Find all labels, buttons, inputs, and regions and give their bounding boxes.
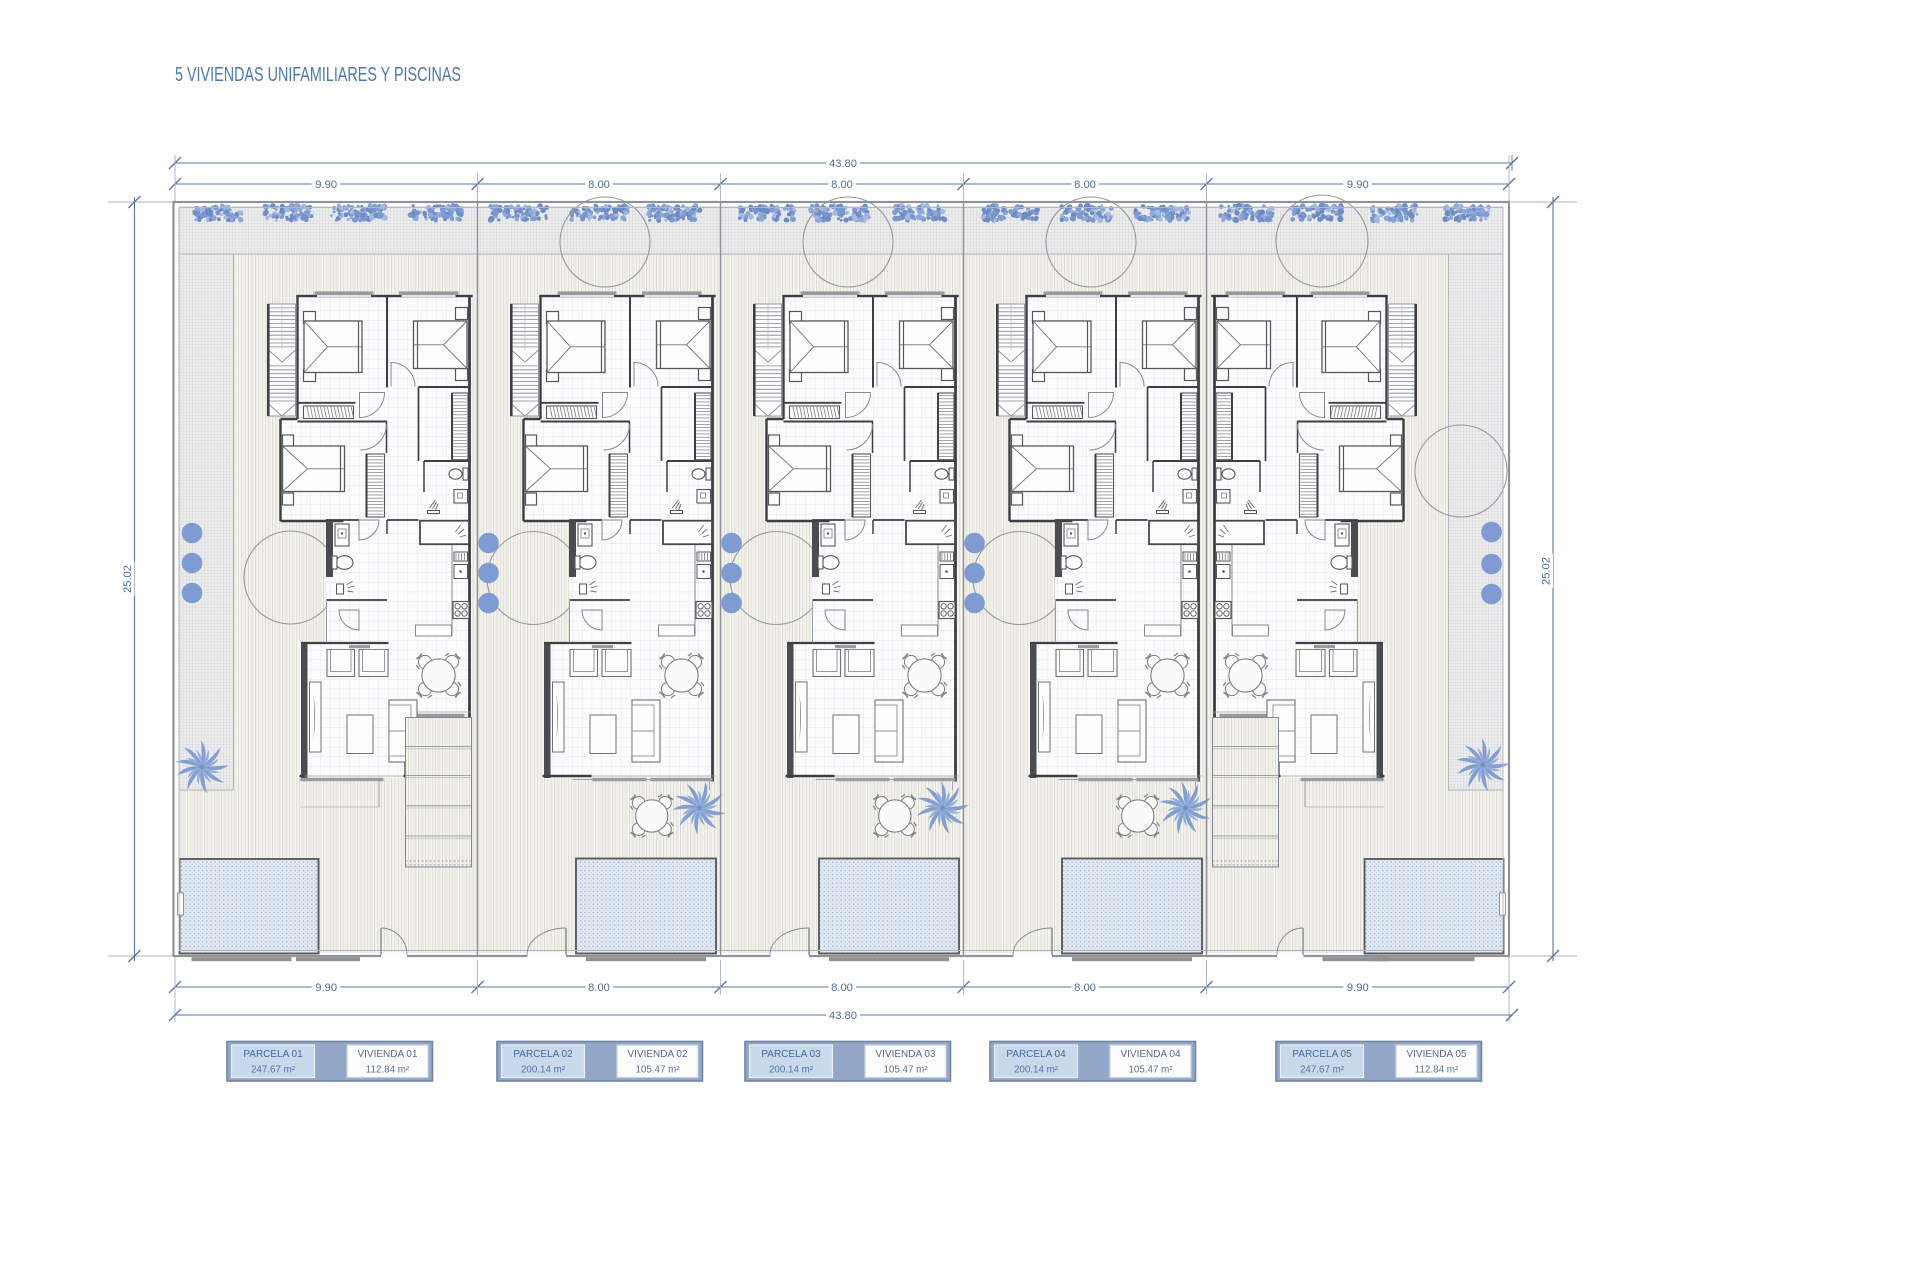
svg-text:43.80: 43.80: [829, 1010, 857, 1022]
svg-text:8.00: 8.00: [1074, 982, 1096, 994]
svg-text:PARCELA 05: PARCELA 05: [1292, 1049, 1352, 1060]
svg-text:9.90: 9.90: [315, 179, 337, 191]
svg-text:VIVIENDA 05: VIVIENDA 05: [1406, 1049, 1466, 1060]
svg-text:25.02: 25.02: [1541, 557, 1553, 585]
svg-text:247.67 m²: 247.67 m²: [1300, 1065, 1345, 1076]
svg-text:VIVIENDA 04: VIVIENDA 04: [1120, 1049, 1180, 1060]
svg-text:8.00: 8.00: [588, 179, 610, 191]
svg-text:9.90: 9.90: [315, 982, 337, 994]
svg-text:PARCELA 03: PARCELA 03: [761, 1049, 821, 1060]
svg-text:200.14 m²: 200.14 m²: [521, 1065, 566, 1076]
svg-text:43.80: 43.80: [829, 158, 857, 170]
svg-text:VIVIENDA 03: VIVIENDA 03: [875, 1049, 935, 1060]
svg-text:8.00: 8.00: [588, 982, 610, 994]
svg-text:VIVIENDA 01: VIVIENDA 01: [357, 1049, 417, 1060]
svg-text:105.47 m²: 105.47 m²: [883, 1065, 928, 1076]
svg-text:247.67 m²: 247.67 m²: [251, 1065, 296, 1076]
svg-text:8.00: 8.00: [1074, 179, 1096, 191]
svg-text:PARCELA 02: PARCELA 02: [513, 1049, 573, 1060]
svg-text:VIVIENDA 02: VIVIENDA 02: [627, 1049, 687, 1060]
svg-text:112.84 m²: 112.84 m²: [366, 1065, 410, 1076]
svg-text:200.14 m²: 200.14 m²: [769, 1065, 814, 1076]
svg-text:25.02: 25.02: [122, 565, 134, 593]
svg-text:105.47 m²: 105.47 m²: [635, 1065, 680, 1076]
svg-text:PARCELA 01: PARCELA 01: [243, 1049, 303, 1060]
svg-text:8.00: 8.00: [831, 982, 853, 994]
svg-text:105.47 m²: 105.47 m²: [1128, 1065, 1173, 1076]
svg-text:9.90: 9.90: [1347, 179, 1369, 191]
svg-text:PARCELA 04: PARCELA 04: [1006, 1049, 1066, 1060]
svg-text:9.90: 9.90: [1347, 982, 1369, 994]
svg-text:200.14 m²: 200.14 m²: [1014, 1065, 1059, 1076]
svg-text:8.00: 8.00: [831, 179, 853, 191]
svg-text:5 VIVIENDAS UNIFAMILIARES Y PI: 5 VIVIENDAS UNIFAMILIARES Y PISCINAS: [175, 63, 461, 86]
svg-text:112.84 m²: 112.84 m²: [1415, 1065, 1459, 1076]
